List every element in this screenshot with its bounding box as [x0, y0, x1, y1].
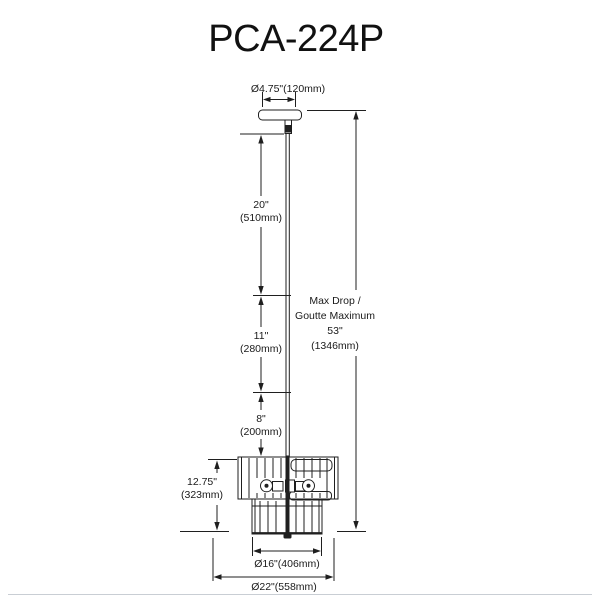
segment-20in-label: 20" (510mm)	[240, 199, 282, 225]
fixture-height-label: 12.75" (323mm)	[181, 476, 223, 502]
segment-20in-inches: 20"	[240, 199, 282, 212]
product-code-title: PCA-224P	[208, 18, 384, 61]
segment-11in-mm: (280mm)	[240, 343, 282, 356]
max-drop-line3: 53"	[295, 324, 375, 339]
inner-diameter-dimension	[253, 537, 322, 556]
canopy-diameter-label: Ø4.75"(120mm)	[251, 83, 325, 96]
inner-diameter-label: Ø16"(406mm)	[254, 558, 320, 571]
fixture-height-inches: 12.75"	[181, 476, 223, 489]
fixture-height-mm: (323mm)	[181, 489, 223, 502]
segment-11in-label: 11" (280mm)	[240, 330, 282, 356]
max-drop-line2: Goutte Maximum	[295, 309, 375, 324]
max-drop-line4: (1346mm)	[295, 339, 375, 354]
product-dimension-diagram: PCA-224P Ø4.75"(120mm) 20" (510mm) 11" (…	[0, 0, 600, 600]
segment-11in-inches: 11"	[240, 330, 282, 343]
canopy	[259, 110, 302, 134]
max-drop-label: Max Drop / Goutte Maximum 53" (1346mm)	[295, 294, 375, 354]
segment-8in-label: 8" (200mm)	[240, 413, 282, 439]
segment-20in-mm: (510mm)	[240, 212, 282, 225]
outer-diameter-label: Ø22"(558mm)	[251, 581, 317, 594]
segment-8in-mm: (200mm)	[240, 426, 282, 439]
max-drop-line1: Max Drop /	[295, 294, 375, 309]
segment-8in-inches: 8"	[240, 413, 282, 426]
